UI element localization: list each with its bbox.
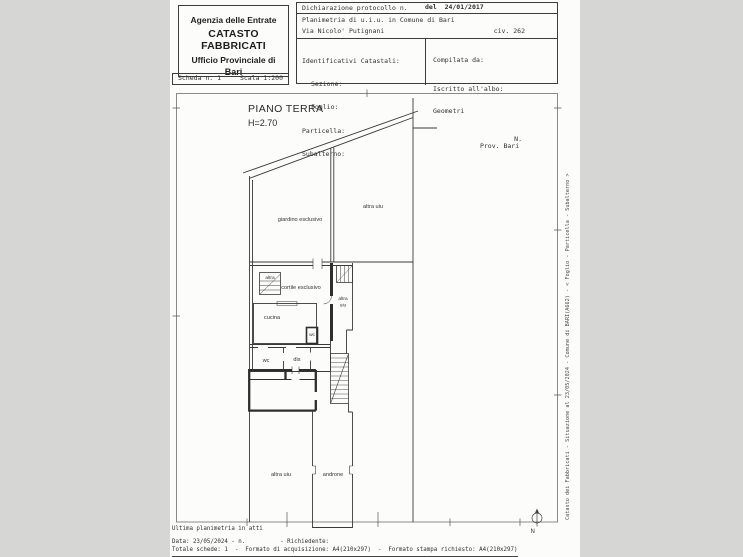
room-altra-stair: altra: [265, 275, 275, 281]
room-giardino: giardino esclusivo: [278, 217, 322, 223]
staircase-top-right: [337, 266, 353, 283]
footer-line2: Data: 23/05/2024 - n. - Richiedente:: [172, 539, 329, 547]
floor-plan-svg: N PIANO TERRA H=2.70 giardino esclusivo …: [170, 0, 580, 557]
plan-walls: [243, 98, 437, 528]
room-altra-small-2: uiu: [340, 303, 347, 309]
room-dis: dis: [293, 357, 300, 363]
staircase-androne: [331, 354, 349, 404]
room-altra-top: altra uiu: [363, 204, 383, 210]
margin-note: Catasto dei Fabbricati - Situazione al 2…: [565, 173, 571, 520]
plan-openings: [277, 259, 378, 528]
footer-line1: Ultima planimetria in atti: [172, 526, 263, 534]
footer-line3: Totale schede: 1 - Formato di acquisizio…: [172, 547, 518, 557]
scanned-document: Agenzia delle Entrate CATASTO FABBRICATI…: [0, 0, 743, 557]
room-cortile: cortile esclusivo: [281, 285, 320, 291]
document-page: Agenzia delle Entrate CATASTO FABBRICATI…: [170, 0, 580, 557]
plan-height: H=2.70: [248, 118, 277, 128]
plan-frame: [173, 90, 562, 527]
compass-label: N: [531, 529, 535, 535]
plan-title: PIANO TERRA: [248, 103, 323, 115]
room-altra-corridor: altra uiu: [271, 472, 291, 478]
room-cucina: cucina: [264, 315, 281, 321]
room-altra-small-1: altra: [338, 296, 348, 302]
room-wc: wc: [262, 358, 270, 364]
room-wc-small: wc: [309, 333, 315, 338]
room-androne: androne: [323, 472, 344, 478]
